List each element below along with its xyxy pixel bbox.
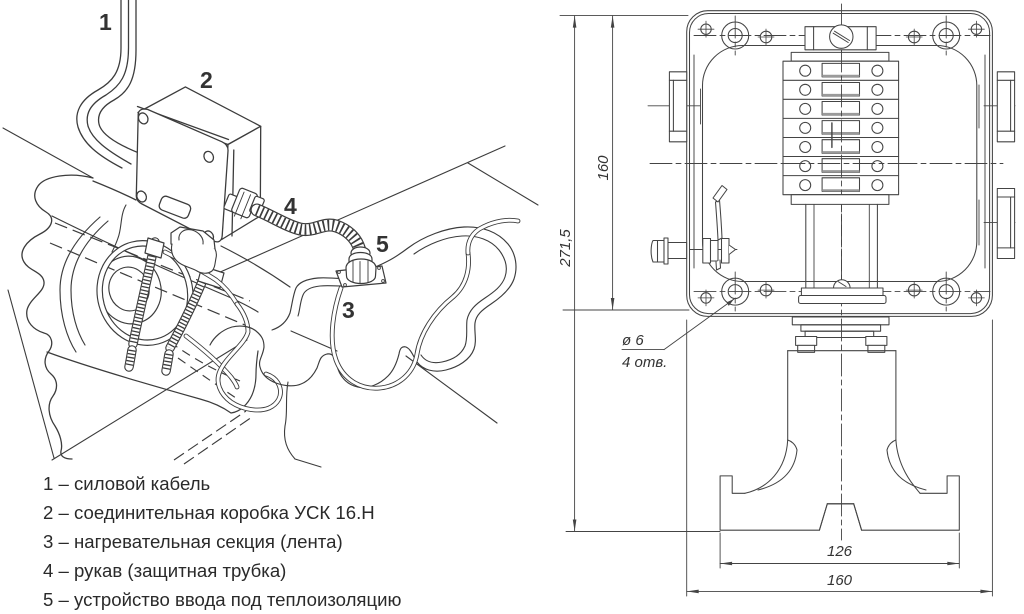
svg-text:160: 160 — [595, 155, 612, 181]
svg-text:ø 6: ø 6 — [622, 332, 644, 349]
svg-text:126: 126 — [827, 543, 853, 560]
svg-text:271,5: 271,5 — [557, 229, 574, 268]
svg-text:2: 2 — [200, 67, 213, 93]
svg-text:5: 5 — [376, 231, 389, 257]
svg-text:160: 160 — [827, 572, 853, 589]
svg-text:1: 1 — [99, 9, 112, 35]
svg-text:3: 3 — [342, 297, 355, 323]
svg-text:4: 4 — [284, 193, 297, 219]
svg-text:4 отв.: 4 отв. — [622, 354, 667, 371]
